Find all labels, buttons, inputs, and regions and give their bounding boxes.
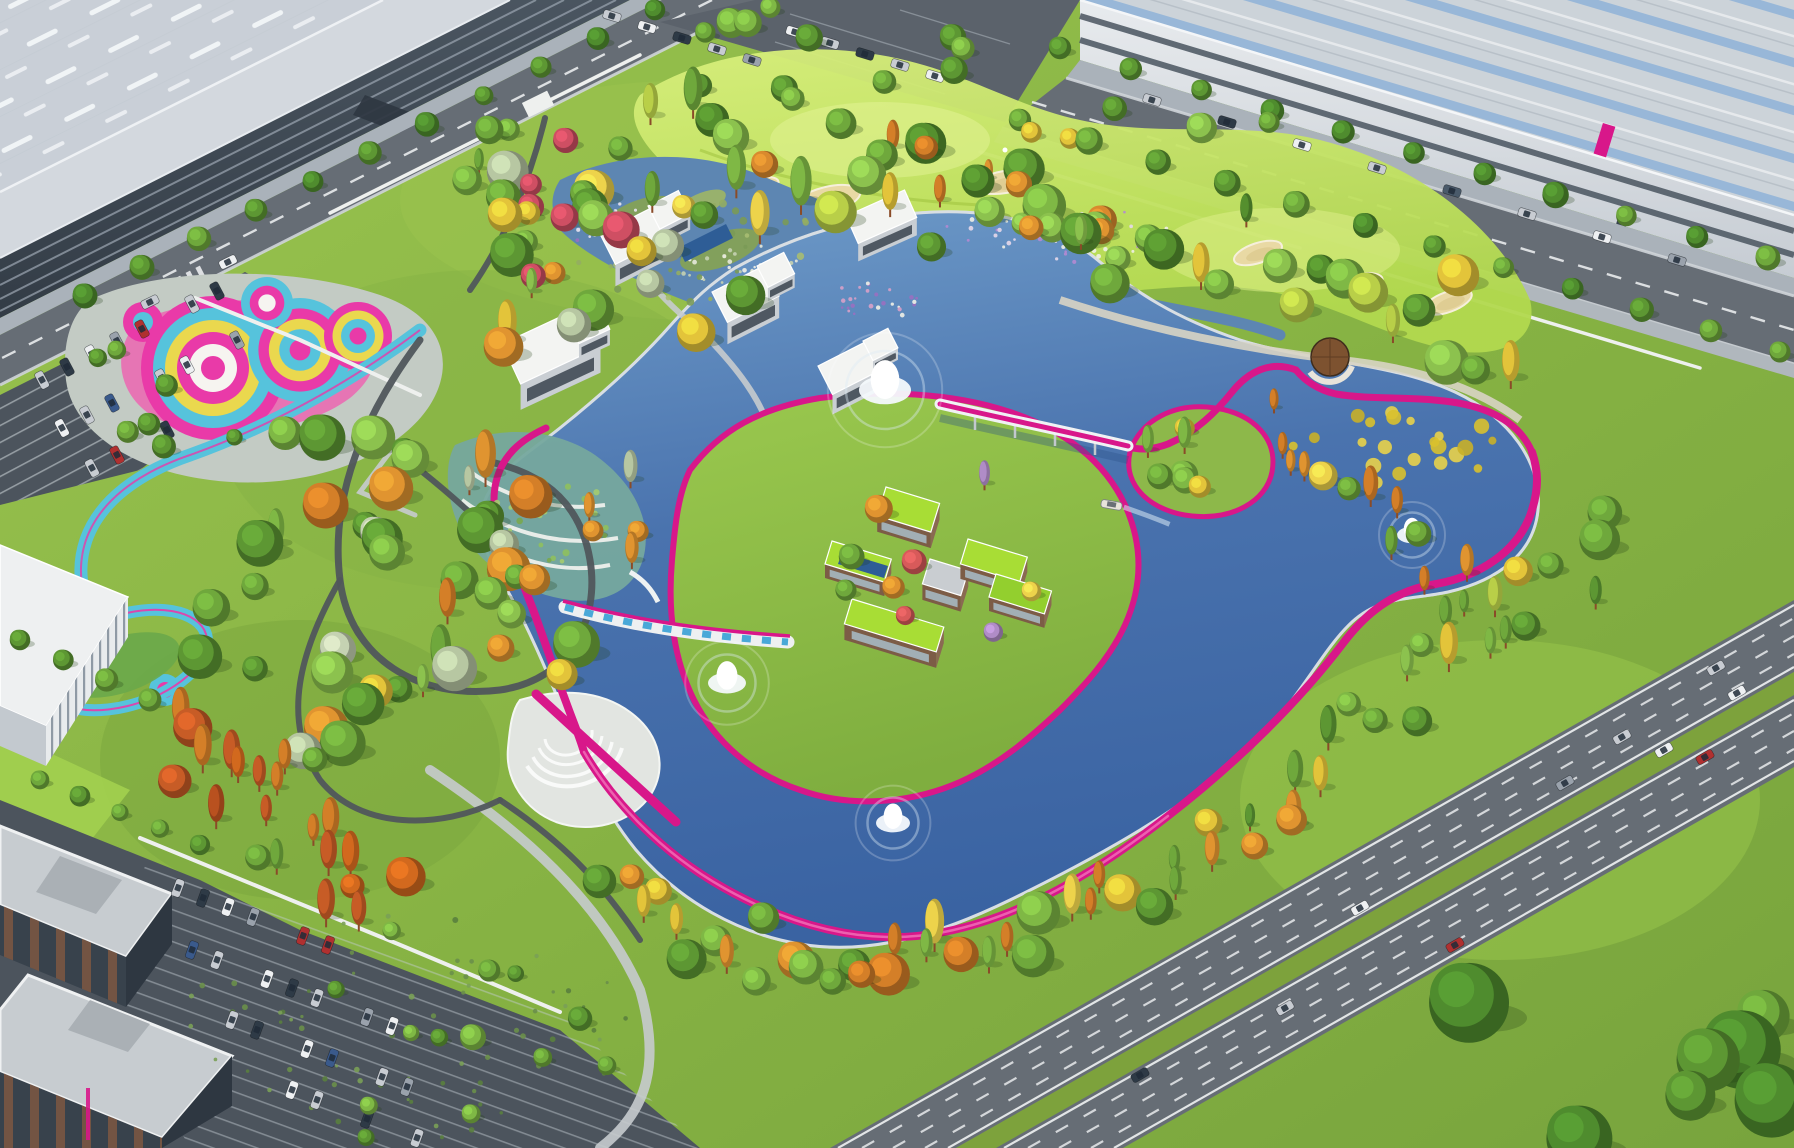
golf-flag bbox=[1003, 148, 1008, 153]
masterplan-rendering bbox=[0, 0, 1794, 1148]
lake-fountain bbox=[856, 786, 931, 861]
magenta-accent-stripe bbox=[86, 1088, 90, 1140]
lake-fountain bbox=[828, 333, 942, 447]
rendering-canvas bbox=[0, 0, 1794, 1148]
lake-fountain bbox=[685, 641, 769, 725]
